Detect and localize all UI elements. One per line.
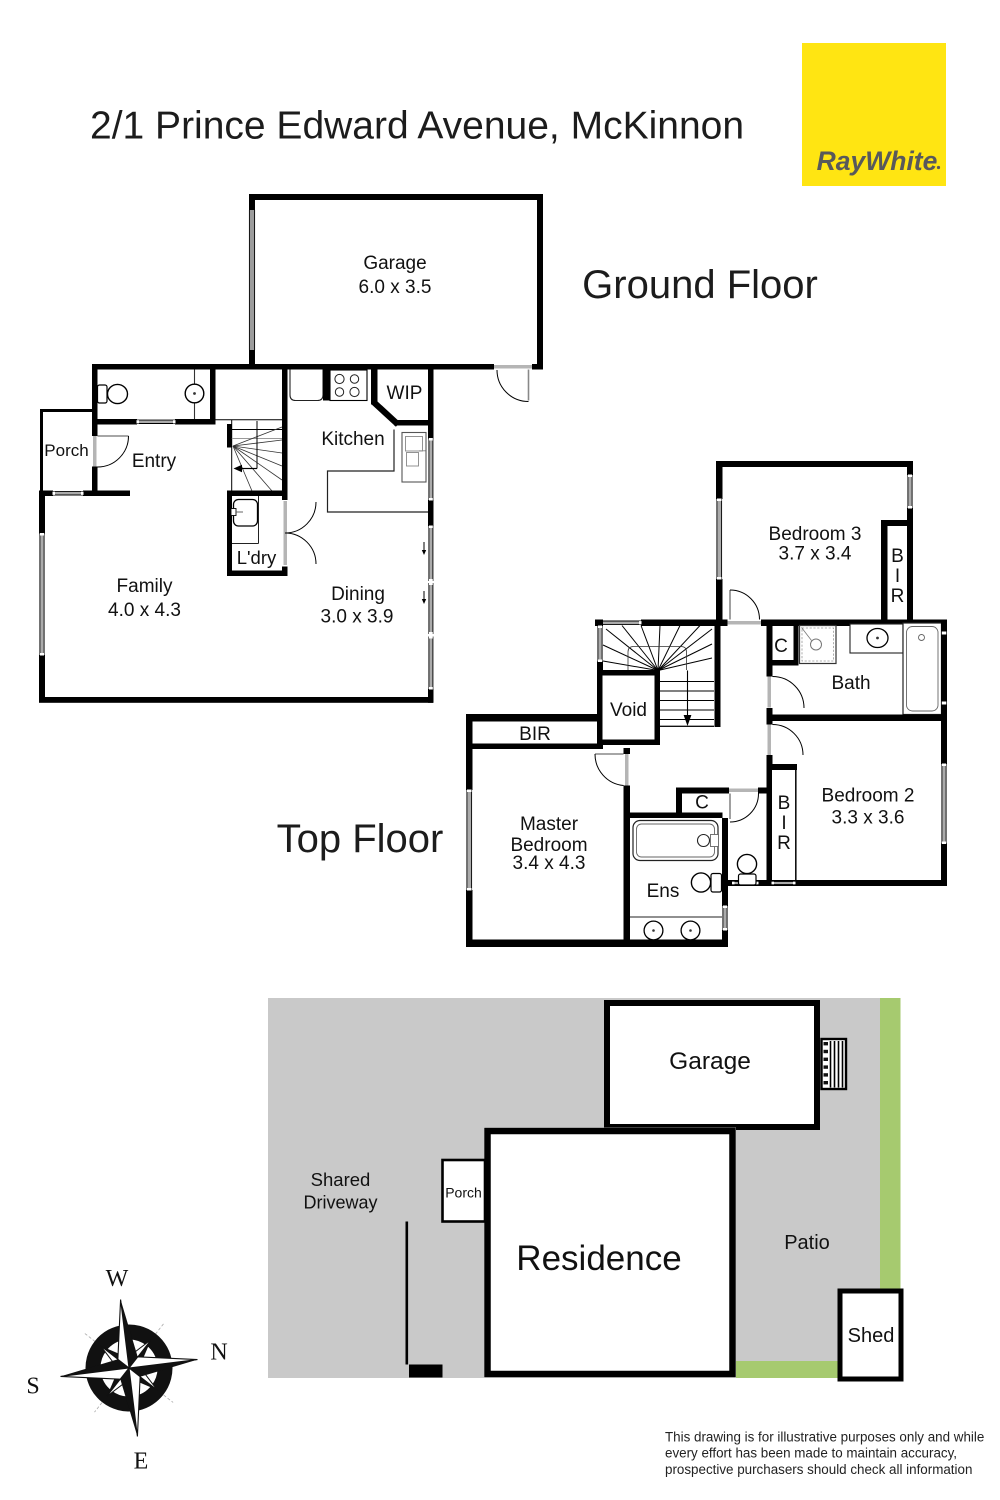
- svg-text:Residence: Residence: [516, 1239, 681, 1278]
- svg-text:Dining: Dining: [331, 584, 385, 605]
- svg-text:3.0 x 3.9: 3.0 x 3.9: [321, 607, 394, 628]
- svg-text:3.3 x 3.6: 3.3 x 3.6: [832, 808, 905, 829]
- svg-text:Kitchen: Kitchen: [321, 429, 384, 450]
- svg-text:B: B: [891, 546, 904, 567]
- svg-text:Ens: Ens: [647, 881, 680, 902]
- svg-text:Porch: Porch: [445, 1185, 482, 1201]
- svg-text:Shed: Shed: [848, 1325, 895, 1347]
- svg-text:Porch: Porch: [44, 441, 88, 460]
- svg-text:R: R: [777, 833, 791, 854]
- svg-text:4.0 x 4.3: 4.0 x 4.3: [108, 600, 181, 621]
- svg-text:Top Floor: Top Floor: [277, 817, 444, 861]
- svg-text:S: S: [26, 1374, 39, 1400]
- svg-text:Bedroom 3: Bedroom 3: [769, 524, 862, 545]
- svg-text:Bath: Bath: [831, 673, 870, 694]
- svg-text:L'dry: L'dry: [237, 547, 277, 568]
- svg-text:E: E: [134, 1449, 149, 1475]
- svg-text:Master: Master: [520, 814, 579, 835]
- svg-text:Shared: Shared: [311, 1169, 371, 1190]
- svg-text:2/1 Prince Edward Avenue, McKi: 2/1 Prince Edward Avenue, McKinnon: [90, 105, 744, 148]
- svg-text:N: N: [210, 1340, 227, 1366]
- svg-text:Entry: Entry: [132, 451, 177, 472]
- svg-text:I: I: [895, 566, 900, 587]
- svg-text:Garage: Garage: [363, 253, 426, 274]
- svg-text:Garage: Garage: [669, 1048, 751, 1075]
- svg-text:3.7 x 3.4: 3.7 x 3.4: [779, 544, 852, 565]
- svg-text:C: C: [695, 793, 709, 814]
- svg-text:3.4 x 4.3: 3.4 x 4.3: [513, 853, 586, 874]
- svg-text:I: I: [781, 813, 786, 834]
- svg-text:B: B: [778, 793, 791, 814]
- svg-text:BIR: BIR: [519, 724, 551, 745]
- svg-text:Ground Floor: Ground Floor: [582, 263, 818, 307]
- svg-text:every effort has been made to: every effort has been made to maintain a…: [665, 1446, 957, 1461]
- svg-text:This drawing is for illustrati: This drawing is for illustrative purpose…: [665, 1430, 984, 1445]
- svg-text:Bedroom 2: Bedroom 2: [822, 786, 915, 807]
- svg-text:WIP: WIP: [387, 383, 423, 404]
- svg-text:Patio: Patio: [784, 1232, 830, 1254]
- svg-text:R: R: [891, 586, 905, 607]
- svg-text:Void: Void: [610, 700, 647, 721]
- svg-text:W: W: [106, 1266, 129, 1292]
- svg-text:6.0 x 3.5: 6.0 x 3.5: [359, 277, 432, 298]
- svg-text:RayWhite: RayWhite: [817, 146, 938, 176]
- svg-text:Driveway: Driveway: [303, 1193, 377, 1213]
- svg-text:prospective purchasers should: prospective purchasers should check all …: [665, 1462, 972, 1477]
- svg-text:Family: Family: [117, 576, 173, 597]
- svg-text:C: C: [774, 636, 788, 657]
